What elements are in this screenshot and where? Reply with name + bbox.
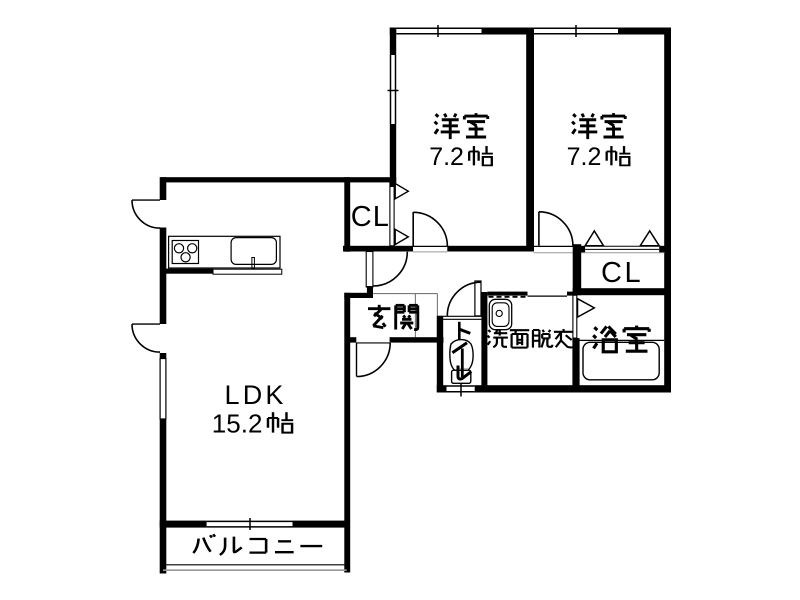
svg-text:LDK: LDK [225, 380, 287, 410]
svg-text:CL: CL [351, 201, 390, 233]
svg-text:7.2: 7.2 [429, 143, 464, 171]
svg-text:15.2: 15.2 [212, 409, 263, 439]
svg-text:7.2: 7.2 [567, 143, 602, 171]
svg-text:CL: CL [601, 257, 643, 289]
